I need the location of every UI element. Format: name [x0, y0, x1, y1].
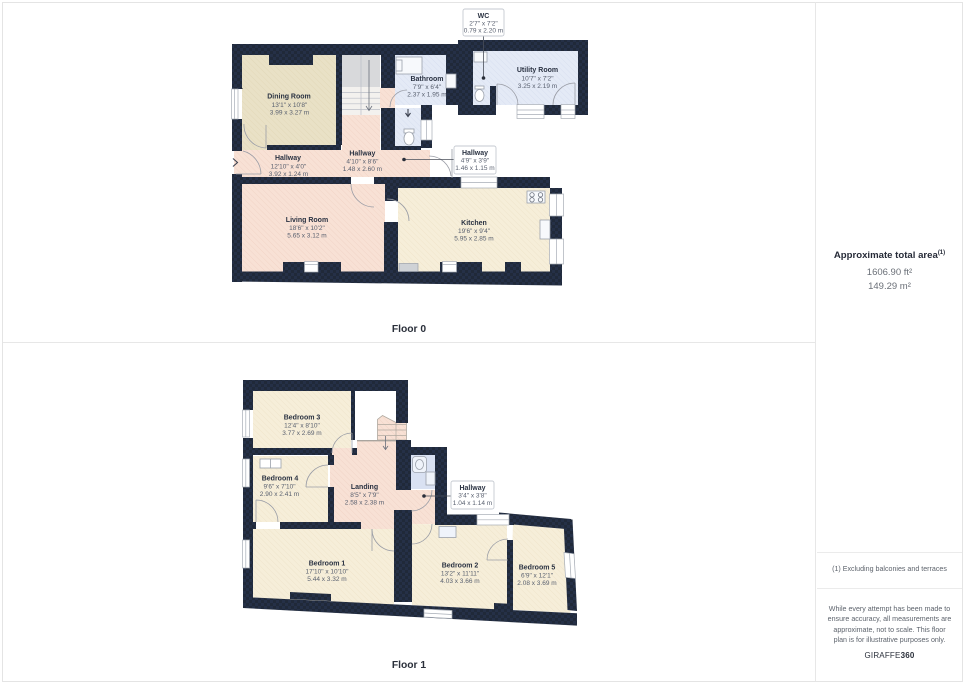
- svg-text:2.90 x 2.41 m: 2.90 x 2.41 m: [260, 491, 299, 498]
- svg-text:1.04 x 1.14 m: 1.04 x 1.14 m: [453, 500, 492, 507]
- svg-text:3.25 x 2.19 m: 3.25 x 2.19 m: [518, 83, 557, 90]
- svg-text:Hallway: Hallway: [349, 151, 375, 158]
- svg-text:5.65 x 3.12 m: 5.65 x 3.12 m: [287, 232, 326, 239]
- svg-text:WC: WC: [478, 13, 490, 20]
- svg-text:Bedroom 2: Bedroom 2: [442, 563, 479, 570]
- svg-text:1.48 x 2.60 m: 1.48 x 2.60 m: [343, 166, 382, 173]
- svg-text:2.58 x 2.38 m: 2.58 x 2.38 m: [345, 500, 384, 507]
- svg-text:4'9" x 3'9": 4'9" x 3'9": [461, 158, 490, 165]
- svg-text:Hallway: Hallway: [459, 485, 485, 492]
- svg-text:Bathroom: Bathroom: [410, 76, 443, 83]
- svg-text:6'9" x 12'1": 6'9" x 12'1": [521, 573, 554, 580]
- svg-text:Hallway: Hallway: [462, 150, 488, 157]
- svg-text:3'4" x 3'8": 3'4" x 3'8": [458, 493, 487, 500]
- svg-text:8'5" x 7'9": 8'5" x 7'9": [350, 492, 379, 499]
- svg-text:3.92 x 1.24 m: 3.92 x 1.24 m: [269, 171, 308, 178]
- svg-text:2.08 x 3.69 m: 2.08 x 3.69 m: [517, 580, 556, 587]
- svg-text:Bedroom 4: Bedroom 4: [262, 475, 299, 482]
- svg-text:Bedroom 3: Bedroom 3: [284, 415, 321, 422]
- svg-text:12'4" x 8'10": 12'4" x 8'10": [284, 423, 320, 430]
- svg-text:2'7" x 7'2": 2'7" x 7'2": [469, 20, 498, 27]
- svg-text:Floor 0: Floor 0: [392, 324, 427, 335]
- svg-text:Bedroom 5: Bedroom 5: [519, 565, 556, 572]
- svg-text:Landing: Landing: [351, 484, 378, 491]
- svg-text:2.37 x 1.95 m: 2.37 x 1.95 m: [407, 91, 446, 98]
- svg-text:Utility Room: Utility Room: [517, 67, 558, 74]
- svg-text:4'10" x 8'6": 4'10" x 8'6": [346, 159, 379, 166]
- svg-text:Bedroom 1: Bedroom 1: [309, 561, 346, 568]
- svg-text:0.79 x 2.20 m: 0.79 x 2.20 m: [464, 28, 503, 35]
- svg-text:17'10" x 10'10": 17'10" x 10'10": [306, 569, 350, 576]
- svg-text:12'10" x 4'0": 12'10" x 4'0": [271, 164, 307, 171]
- svg-text:10'7" x 7'2": 10'7" x 7'2": [521, 75, 554, 82]
- svg-text:19'6" x 9'4": 19'6" x 9'4": [458, 228, 491, 235]
- svg-text:5.44 x 3.32 m: 5.44 x 3.32 m: [307, 576, 346, 583]
- svg-text:Kitchen: Kitchen: [461, 220, 487, 227]
- svg-text:18'6" x 10'2": 18'6" x 10'2": [289, 225, 325, 232]
- svg-text:13'2" x 11'11": 13'2" x 11'11": [441, 571, 480, 578]
- svg-text:3.77 x 2.69 m: 3.77 x 2.69 m: [282, 430, 321, 437]
- svg-text:4.03 x 3.66 m: 4.03 x 3.66 m: [440, 578, 479, 585]
- svg-text:9'6" x 7'10": 9'6" x 7'10": [263, 483, 296, 490]
- svg-text:Dining Room: Dining Room: [267, 94, 311, 101]
- svg-text:13'1" x 10'8": 13'1" x 10'8": [272, 102, 308, 109]
- svg-text:3.99 x 3.27 m: 3.99 x 3.27 m: [270, 109, 309, 116]
- svg-text:7'9" x 6'4": 7'9" x 6'4": [413, 84, 442, 91]
- svg-text:5.95 x 2.85 m: 5.95 x 2.85 m: [454, 235, 493, 242]
- svg-text:1.46 x 1.15 m: 1.46 x 1.15 m: [455, 165, 494, 172]
- svg-text:Hallway: Hallway: [275, 155, 301, 162]
- svg-text:Floor 1: Floor 1: [392, 660, 427, 671]
- svg-text:Living Room: Living Room: [286, 217, 328, 224]
